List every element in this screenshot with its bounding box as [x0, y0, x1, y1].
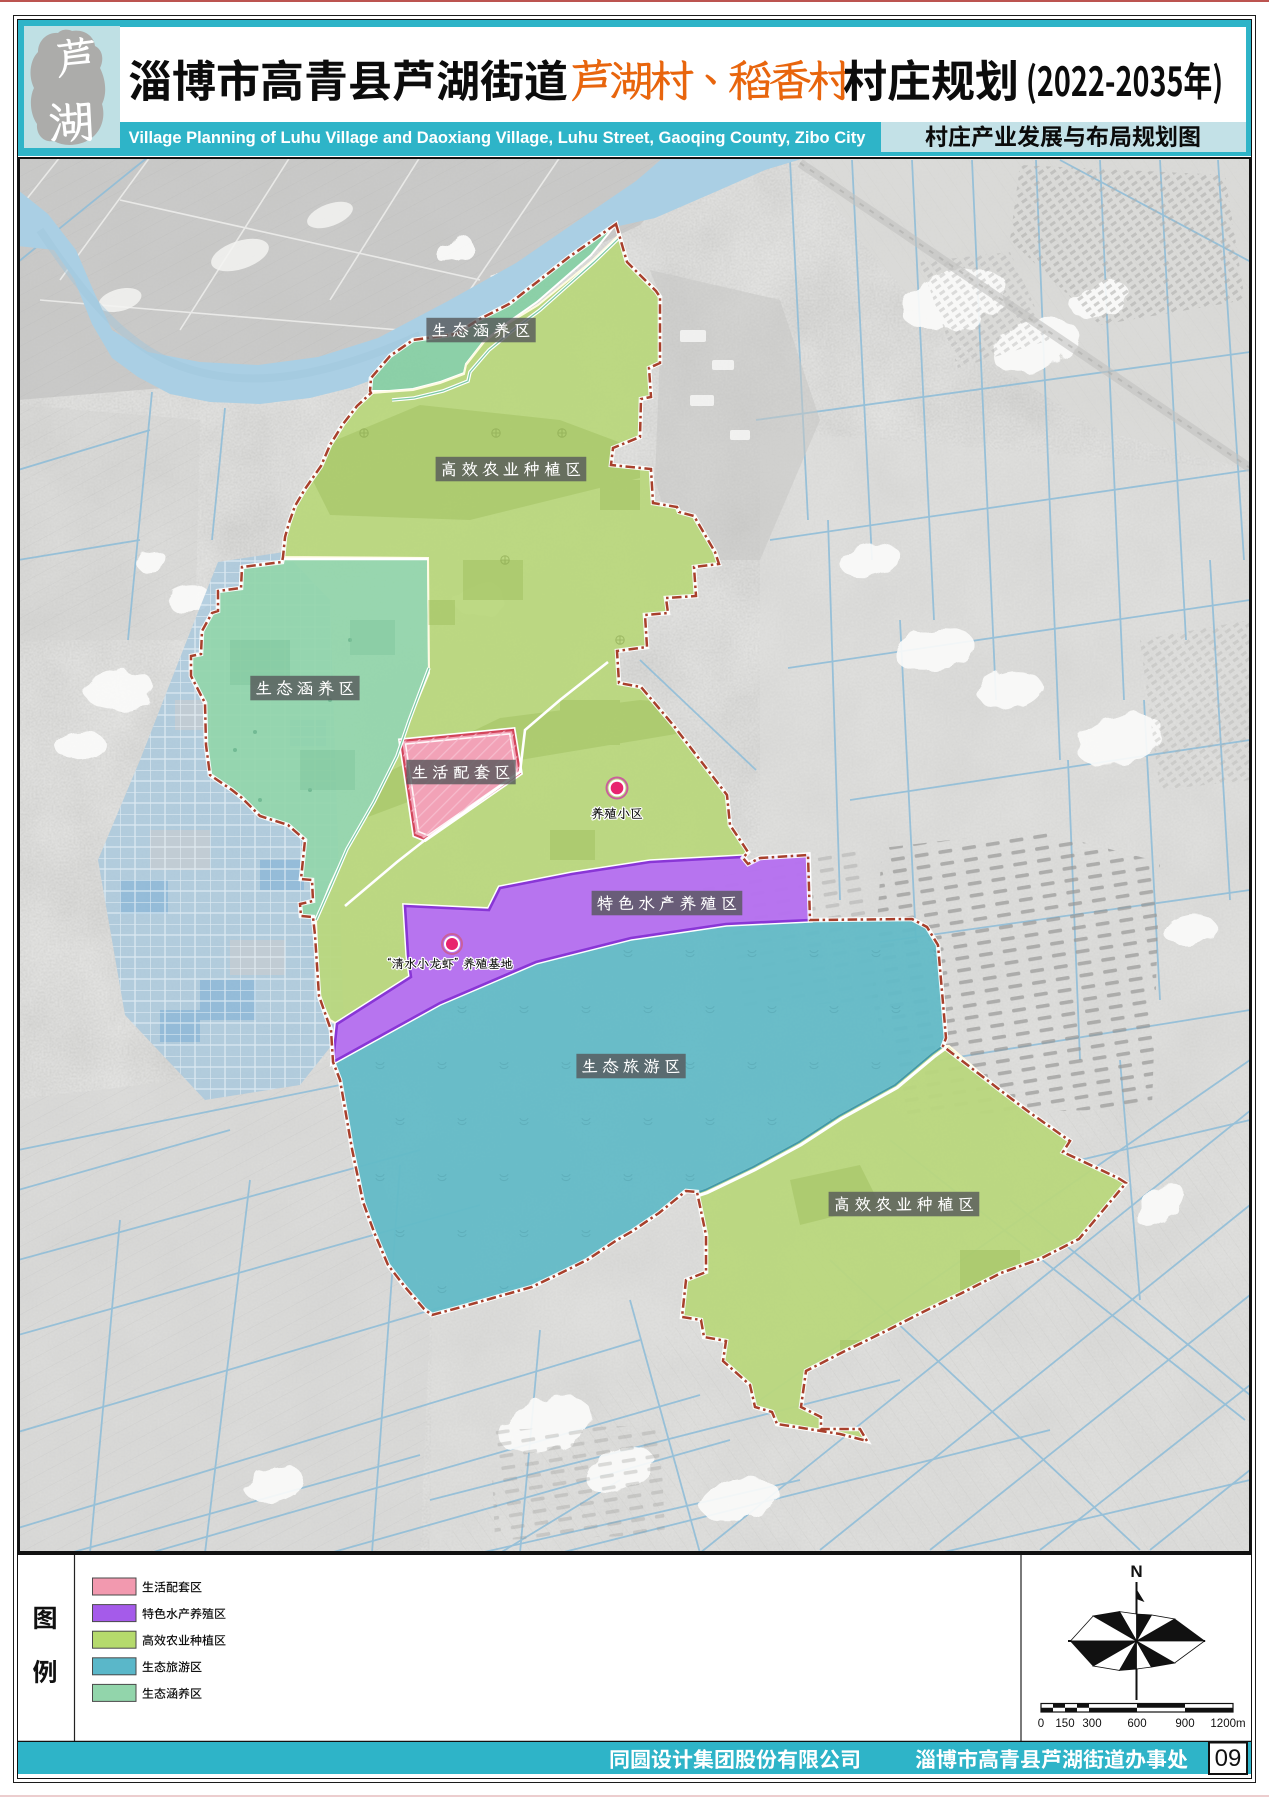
svg-text:150: 150	[1055, 1718, 1074, 1730]
svg-text:600: 600	[1127, 1718, 1146, 1730]
svg-text:900: 900	[1175, 1718, 1194, 1730]
svg-text:Village Planning of Luhu Villa: Village Planning of Luhu Village and Dao…	[129, 129, 867, 147]
svg-text:N: N	[1130, 1562, 1142, 1581]
svg-text:1200m: 1200m	[1210, 1718, 1245, 1730]
svg-text:0: 0	[1038, 1718, 1044, 1730]
svg-text:09: 09	[1215, 1745, 1242, 1772]
svg-text:300: 300	[1082, 1718, 1101, 1730]
